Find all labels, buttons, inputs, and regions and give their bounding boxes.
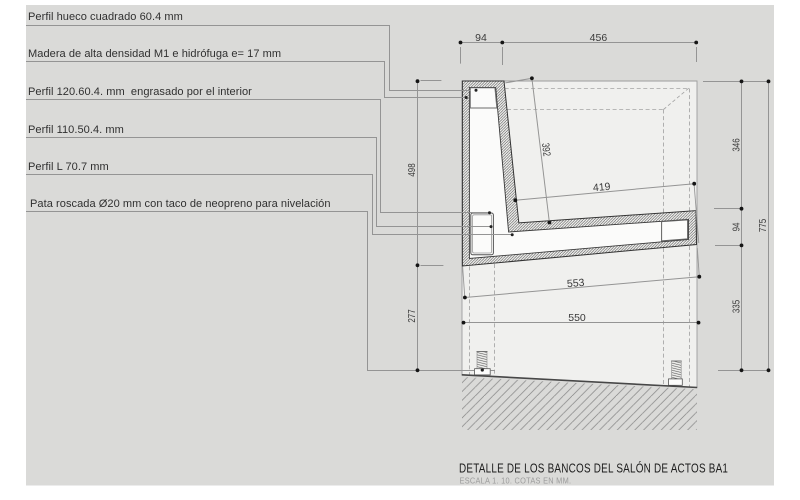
svg-text:550: 550 [568,312,586,324]
svg-text:456: 456 [590,32,608,44]
svg-text:Madera de alta densidad M1 e h: Madera de alta densidad M1 e hidrófuga e… [28,48,281,60]
svg-text:94: 94 [475,32,487,44]
svg-text:DETALLE DE LOS BANCOS DEL SALÓ: DETALLE DE LOS BANCOS DEL SALÓN DE ACTOS… [459,461,728,476]
svg-text:Perfil hueco cuadrado 60.4 mm: Perfil hueco cuadrado 60.4 mm [28,11,183,23]
svg-text:277: 277 [406,309,417,322]
svg-text:553: 553 [566,277,585,291]
svg-text:Perfil 110.50.4. mm: Perfil 110.50.4. mm [28,124,124,136]
svg-text:392: 392 [540,142,553,157]
svg-text:ESCALA 1. 10. COTAS EN MM.: ESCALA 1. 10. COTAS EN MM. [460,476,572,485]
svg-text:775: 775 [757,219,768,232]
svg-text:94: 94 [730,223,741,232]
svg-text:Perfil 120.60.4. mm engrasado: Perfil 120.60.4. mm engrasado por el int… [28,86,252,98]
svg-text:419: 419 [592,181,611,195]
svg-text:Pata roscada Ø20 mm con taco d: Pata roscada Ø20 mm con taco de neopreno… [30,198,331,210]
svg-text:346: 346 [730,138,741,151]
svg-text:Perfil L 70.7 mm: Perfil L 70.7 mm [28,161,109,173]
svg-text:498: 498 [406,163,417,176]
svg-text:335: 335 [730,300,741,313]
